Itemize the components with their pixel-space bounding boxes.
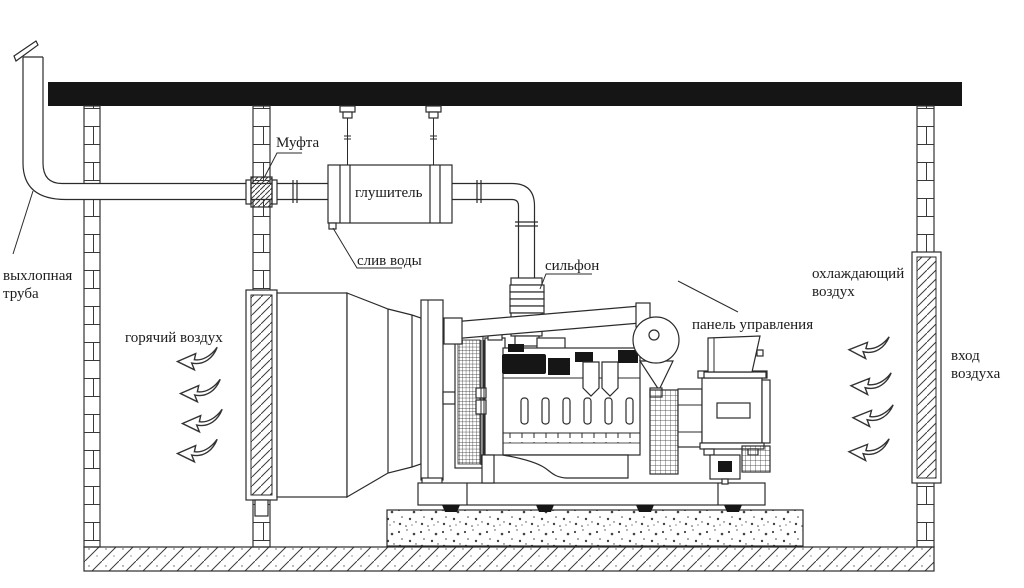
valve-cover bbox=[548, 358, 570, 375]
flange bbox=[511, 278, 542, 285]
bellows-rib bbox=[510, 285, 544, 292]
cylinder-port bbox=[605, 398, 612, 424]
exhaust-pipe-run-mask bbox=[58, 184, 328, 199]
hot-air-louver bbox=[251, 295, 272, 495]
cylinder-port bbox=[521, 398, 528, 424]
cylinder-port bbox=[542, 398, 549, 424]
manifold-part bbox=[508, 344, 524, 352]
floor-slab bbox=[84, 547, 934, 571]
vibration-mount bbox=[724, 505, 742, 512]
roof-slab bbox=[48, 82, 962, 106]
hot-air-label: горячий воздух bbox=[125, 330, 223, 346]
control-panel-label: панель управления bbox=[692, 317, 813, 333]
flywheel-adapter bbox=[678, 389, 702, 447]
terminal-box-stem bbox=[722, 479, 728, 484]
vibration-mount bbox=[442, 505, 460, 512]
bellows-rib bbox=[510, 306, 544, 313]
hanger-bracket bbox=[343, 112, 352, 118]
air-inlet-label-line2: воздуха bbox=[951, 366, 1001, 382]
left-wall-column bbox=[84, 106, 100, 547]
hanger-bracket bbox=[426, 106, 441, 112]
block-bolt-rail bbox=[503, 433, 640, 443]
concrete-foundation-pad bbox=[387, 510, 803, 546]
drain-nub bbox=[329, 223, 336, 229]
bellows-label: сильфон bbox=[545, 258, 599, 274]
turbo bbox=[618, 350, 638, 363]
water-drain-label: слив воды bbox=[357, 253, 422, 269]
duct-cone bbox=[347, 293, 421, 497]
coupling-flange-left bbox=[246, 180, 251, 204]
cylinder-port bbox=[563, 398, 570, 424]
air-inlet-grille bbox=[917, 257, 936, 478]
fuel-filter bbox=[602, 362, 618, 396]
radiator-frame bbox=[421, 300, 443, 480]
control-panel-knob bbox=[757, 350, 763, 356]
cooling-air-label-line2: воздух bbox=[812, 284, 855, 300]
vibration-mount bbox=[536, 505, 554, 512]
exhaust-pipe-label-line1: выхлопная bbox=[3, 268, 72, 284]
coupling-flange-right bbox=[272, 180, 277, 204]
hanger-bracket bbox=[429, 112, 438, 118]
air-filter-hub bbox=[649, 330, 659, 340]
alternator-foot bbox=[704, 449, 714, 455]
bellows-rib bbox=[510, 292, 544, 299]
cylinder-port bbox=[626, 398, 633, 424]
front-gear-housing bbox=[485, 338, 505, 455]
diagram-canvas: глушитель bbox=[0, 0, 1024, 588]
valve-cover bbox=[502, 354, 546, 374]
air-inlet-louver bbox=[912, 252, 941, 483]
flywheel-grille bbox=[650, 390, 678, 474]
skid-rail bbox=[418, 483, 765, 505]
bellows-rib bbox=[510, 299, 544, 306]
fuel-filter bbox=[583, 362, 599, 396]
muffler: глушитель bbox=[328, 165, 452, 229]
alternator-nameplate bbox=[717, 403, 750, 418]
alternator-rear-grille bbox=[742, 446, 770, 472]
coupling-label: Муфта bbox=[276, 135, 320, 151]
louver-bottom-bracket bbox=[255, 500, 268, 516]
manifold-part bbox=[575, 352, 593, 362]
control-panel-base bbox=[704, 372, 766, 378]
cooling-air-label-line1: охлаждающий bbox=[812, 266, 904, 282]
duct-box bbox=[277, 293, 347, 497]
bellows bbox=[510, 285, 544, 313]
cylinder-port bbox=[584, 398, 591, 424]
terminal-box-window bbox=[718, 461, 732, 472]
air-inlet-label-line1: вход bbox=[951, 348, 980, 364]
hanger-bracket bbox=[340, 106, 355, 112]
control-panel-body bbox=[708, 336, 760, 372]
vibration-mount bbox=[636, 505, 654, 512]
intake-duct-end-box bbox=[444, 318, 462, 344]
coupling-body bbox=[251, 177, 272, 207]
alternator-end-cap bbox=[762, 380, 770, 443]
muffler-label: глушитель bbox=[355, 185, 423, 201]
engine-front-support bbox=[482, 455, 494, 483]
fan-hub bbox=[443, 392, 455, 404]
genset-room-diagram: глушитель bbox=[0, 0, 1024, 588]
exhaust-pipe-label-line2: труба bbox=[3, 286, 39, 302]
